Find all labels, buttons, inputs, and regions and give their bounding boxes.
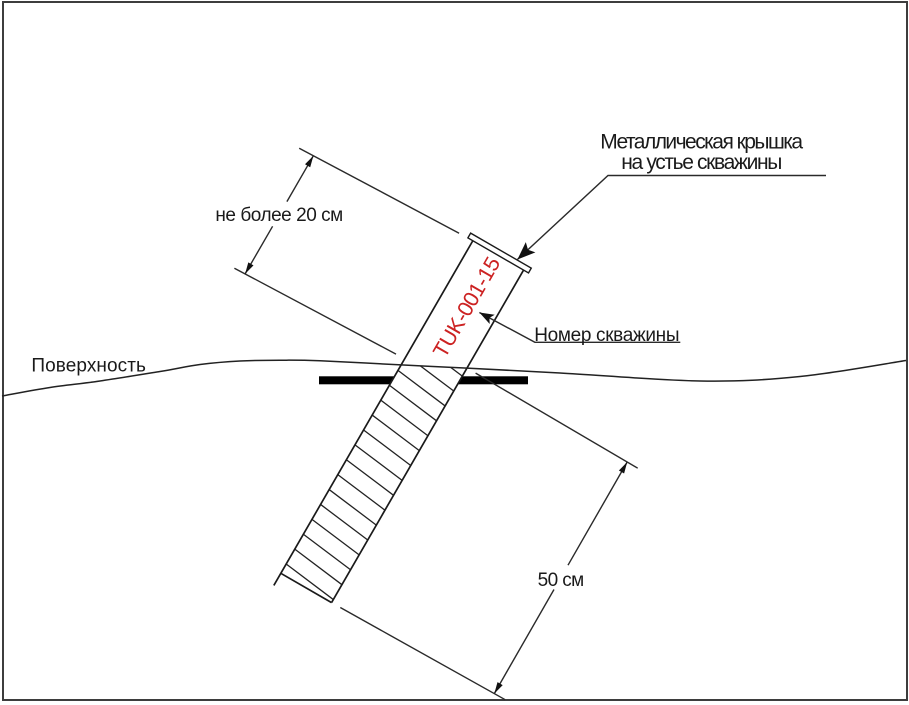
svg-text:Номер скважины: Номер скважины xyxy=(534,325,679,346)
svg-text:на устье скважины: на устье скважины xyxy=(621,151,782,174)
svg-text:Поверхность: Поверхность xyxy=(31,356,146,377)
svg-text:Металлическая крышка: Металлическая крышка xyxy=(600,130,803,153)
svg-text:50 см: 50 см xyxy=(538,570,585,591)
svg-text:не более 20 см: не более 20 см xyxy=(215,205,343,226)
